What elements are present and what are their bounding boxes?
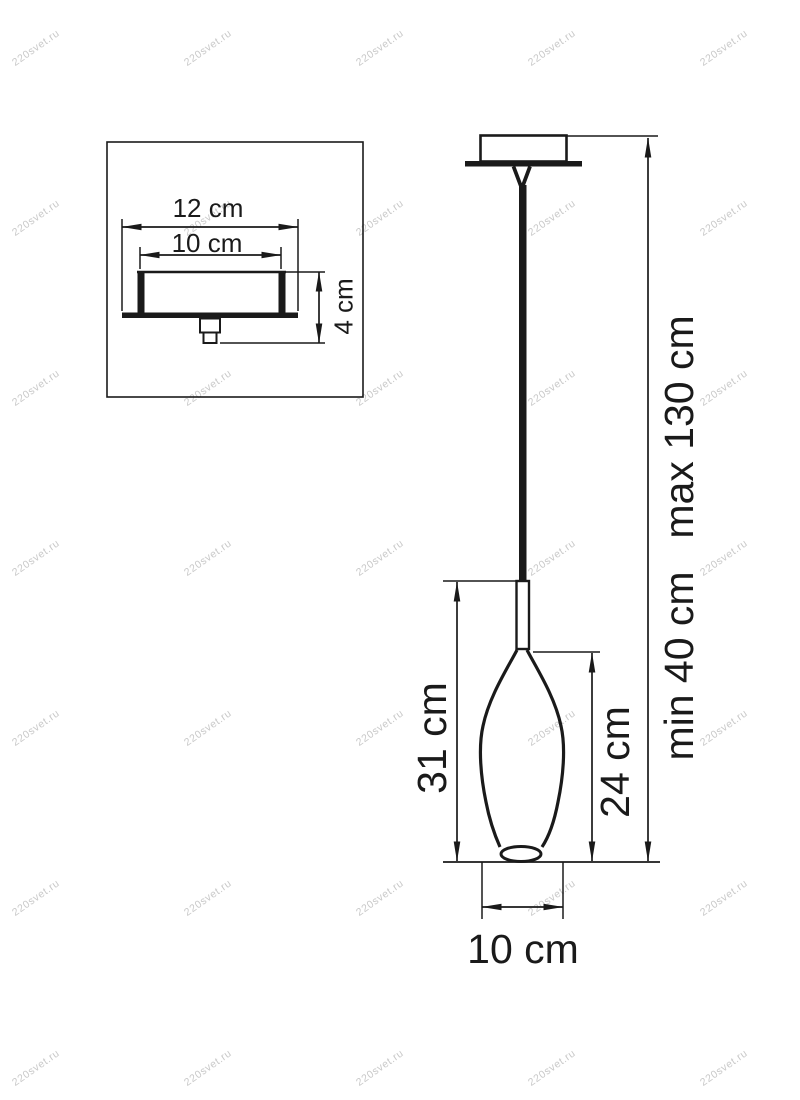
shade-opening xyxy=(501,847,541,862)
inset-border xyxy=(107,142,363,397)
glass-height-label: 24 cm xyxy=(592,706,638,818)
pendant-lamp-diagram: 12 cm 10 cm 4 cm xyxy=(0,0,800,1100)
canopy-plate-width-label: 12 cm xyxy=(173,193,244,223)
canopy-height-label: 4 cm xyxy=(329,278,359,334)
canopy-cup-width-label: 10 cm xyxy=(172,228,243,258)
shade-diameter-label: 10 cm xyxy=(467,926,579,972)
shade-stem xyxy=(517,581,530,649)
pendant-lamp: 31 cm 24 cm min 40 cm max 130 cm 10 cm xyxy=(409,136,702,973)
canopy-cup-detail xyxy=(122,271,298,318)
glass-shade xyxy=(480,650,563,862)
max-height-label: max 130 cm xyxy=(656,315,702,538)
canopy-plate xyxy=(465,161,582,167)
suspension-cord xyxy=(519,185,527,581)
dimension-drawing: 220svet.ru220svet.ru220svet.ru220svet.ru… xyxy=(0,0,800,1100)
min-height-label: min 40 cm xyxy=(656,571,702,760)
canopy-cup xyxy=(481,136,567,162)
canopy-plate-detail xyxy=(122,313,298,319)
shade-stem-height-label: 31 cm xyxy=(409,682,455,794)
canopy-detail-inset: 12 cm 10 cm 4 cm xyxy=(107,142,363,397)
canopy-nipple-detail xyxy=(200,319,220,344)
